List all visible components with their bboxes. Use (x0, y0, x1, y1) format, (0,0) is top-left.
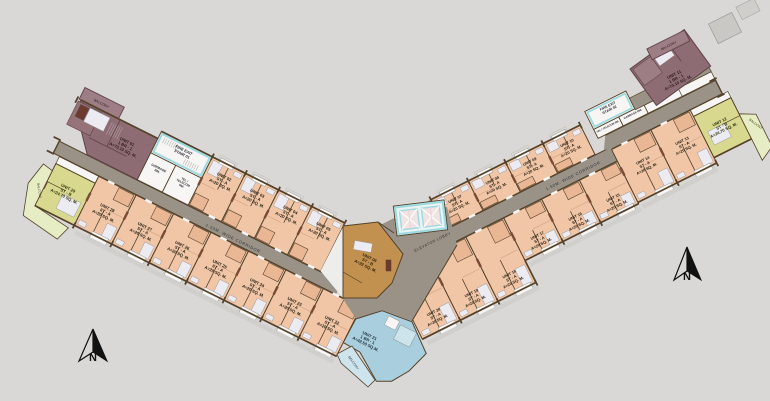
svg-text:N: N (89, 352, 97, 364)
svg-text:N: N (683, 271, 691, 283)
